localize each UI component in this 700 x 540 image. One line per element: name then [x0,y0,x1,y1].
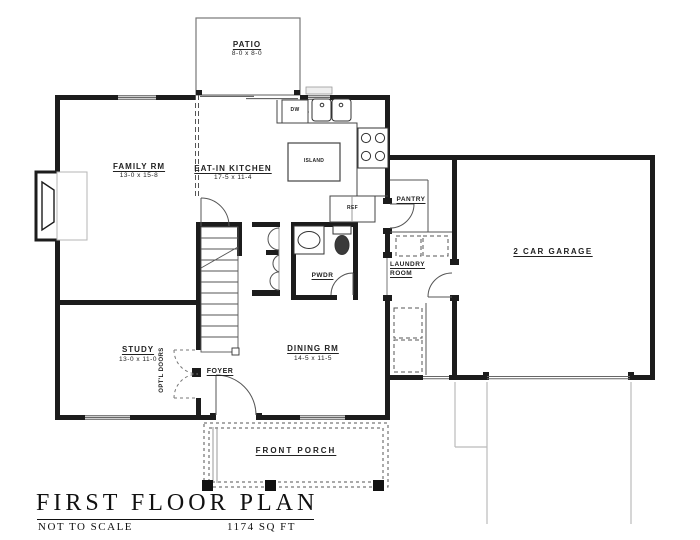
area-note: 1174 SQ FT [227,521,296,533]
optional-doors-label: OPT'L DOORS [159,341,165,399]
room-dims-kitchen: 17-5 x 11-4 [173,174,293,181]
floor-plan: PATIO 8-0 x 8-0 FAMILY RM 13-0 x 15-8 EA… [0,0,700,540]
room-dims-study: 13-0 x 11-0 [88,356,188,363]
room-dims-patio: 8-0 x 8-0 [197,50,297,57]
room-label-laundry-1: LAUNDRY [390,261,450,268]
stairs [201,227,239,355]
pantry-door-arc [390,204,414,228]
pantry-walls [390,180,452,232]
dishwasher-label: DW [282,107,308,113]
room-label-dining: DINING RM [263,344,363,353]
ceiling-break-dashed-wall [196,95,199,198]
scale-note: NOT TO SCALE [38,521,133,533]
title-underline [37,519,314,520]
front-door-arc [216,375,256,415]
room-label-porch: FRONT PORCH [236,446,356,455]
sink-icon [312,99,351,121]
driveway-lines [455,382,631,524]
room-dims-dining: 14-5 x 11-5 [263,355,363,362]
room-label-patio: PATIO [197,40,297,49]
room-label-foyer: FOYER [190,368,250,375]
fireplace-icon [36,172,87,240]
plan-title: FIRST FLOOR PLAN [36,490,318,517]
island-label: ISLAND [289,158,339,164]
closet-bifold-doors-icon [268,227,279,290]
vanity-sink-icon [294,226,324,254]
room-label-garage: 2 CAR GARAGE [493,247,613,256]
toilet-icon [333,226,351,255]
room-label-kitchen: EAT-IN KITCHEN [173,164,293,173]
refrigerator-label: REF [330,205,375,211]
room-label-study: STUDY [88,345,188,354]
floor-plan-svg [0,0,700,540]
front-porch-outline [204,423,388,487]
room-label-laundry-2: ROOM [390,270,450,277]
exterior-walls [55,95,655,420]
washer-dryer-icon [396,236,448,256]
room-label-pantry: PANTRY [385,196,437,203]
closet-shelves [394,303,426,375]
stove-icon [358,128,388,168]
kitchen-door-arc [201,198,229,226]
room-label-powder: PWDR [300,272,345,279]
